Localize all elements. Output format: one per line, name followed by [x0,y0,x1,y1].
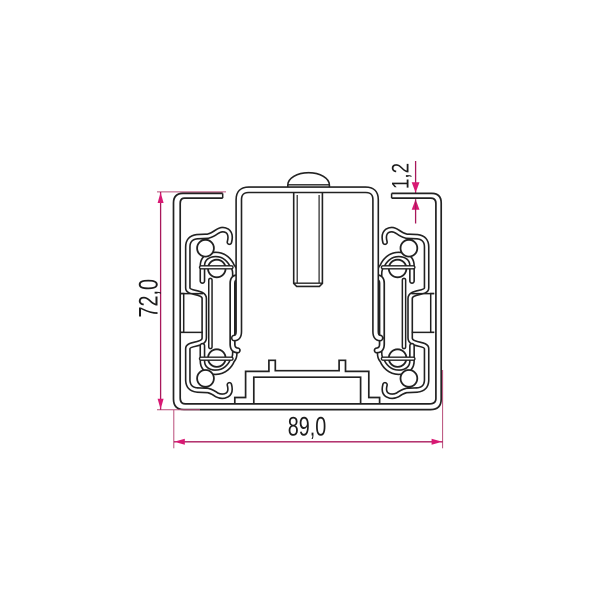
svg-text:89,0: 89,0 [288,411,327,441]
svg-text:72,0: 72,0 [134,279,164,318]
svg-text:1,2: 1,2 [388,163,415,189]
